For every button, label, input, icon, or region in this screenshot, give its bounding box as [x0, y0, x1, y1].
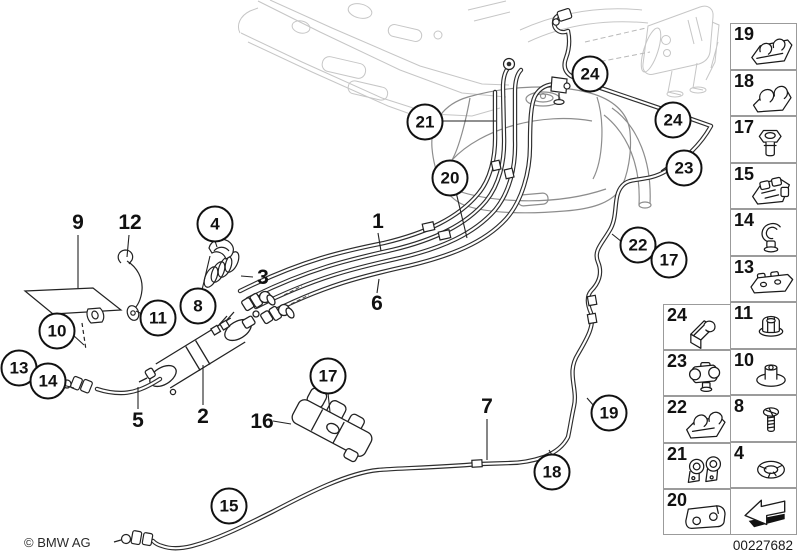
charcoal-canister-drawing	[637, 6, 719, 97]
nav-arrow-icon	[737, 491, 791, 531]
angle-holder-icon	[680, 311, 730, 349]
callout-circle-19[interactable]: 19	[591, 395, 628, 432]
washer-nut-icon	[746, 356, 796, 394]
legend-item-14[interactable]: 14	[730, 209, 797, 256]
legend-item-label: 8	[734, 396, 744, 417]
open-clamp-icon	[680, 404, 730, 442]
screw-icon	[746, 403, 796, 441]
legend-item-23[interactable]: 23	[663, 350, 731, 396]
callout-circle-24[interactable]: 24	[572, 56, 609, 93]
callout-label-16[interactable]: 16	[250, 410, 273, 434]
bmw-copyright: © BMW AG	[24, 535, 91, 550]
legend-item-18[interactable]: 18	[730, 70, 797, 117]
legend-item-8[interactable]: 8	[730, 395, 797, 442]
legend-nav-cell[interactable]	[730, 488, 797, 535]
legend-item-label: 4	[734, 443, 744, 464]
legend-item-20[interactable]: 20	[663, 489, 731, 535]
callout-circle-17[interactable]: 17	[310, 358, 347, 395]
diagram-number: 00227682	[733, 538, 793, 553]
callout-circle-8[interactable]: 8	[180, 288, 217, 325]
screw-plug-icon	[746, 124, 796, 162]
cap-nut-icon	[746, 310, 796, 348]
callout-label-12[interactable]: 12	[118, 211, 141, 235]
callout-label-3[interactable]: 3	[257, 266, 269, 290]
legend-item-13[interactable]: 13	[730, 256, 797, 303]
callout-label-6[interactable]: 6	[371, 292, 383, 316]
callout-label-1[interactable]: 1	[372, 210, 384, 234]
clamp-rail-icon	[746, 31, 796, 69]
legend-item-21[interactable]: 21	[663, 443, 731, 489]
clamp-block-drawing	[286, 384, 381, 465]
c-clip-icon	[746, 217, 796, 255]
callout-circle-20[interactable]: 20	[432, 160, 469, 197]
round-clamp-icon	[680, 357, 730, 395]
callout-circle-17[interactable]: 17	[651, 242, 688, 279]
legend-item-10[interactable]: 10	[730, 349, 797, 396]
rubber-block-icon	[680, 496, 730, 534]
callout-circle-14[interactable]: 14	[30, 363, 67, 400]
long-rail-icon	[746, 263, 796, 301]
callout-circle-10[interactable]: 10	[39, 313, 76, 350]
fuel-pipes-drawing	[153, 8, 711, 548]
callout-circle-15[interactable]: 15	[211, 488, 248, 525]
callout-label-7[interactable]: 7	[481, 395, 493, 419]
lock-ring-icon	[746, 449, 796, 487]
callout-label-2[interactable]: 2	[197, 405, 209, 429]
legend-item-24[interactable]: 24	[663, 304, 731, 350]
callout-circle-11[interactable]: 11	[140, 300, 177, 337]
clamp-double-icon	[746, 77, 796, 115]
double-clip-icon	[680, 450, 730, 488]
callout-circle-21[interactable]: 21	[407, 104, 444, 141]
legend-item-22[interactable]: 22	[663, 396, 731, 442]
parts-diagram-page: © BMW AG 00227682 2421242320422178111013…	[0, 0, 799, 559]
callout-label-9[interactable]: 9	[72, 211, 84, 235]
legend-item-11[interactable]: 11	[730, 302, 797, 349]
callout-circle-24[interactable]: 24	[655, 102, 692, 139]
legend-item-17[interactable]: 17	[730, 116, 797, 163]
callout-circle-18[interactable]: 18	[534, 454, 571, 491]
callout-circle-23[interactable]: 23	[666, 150, 703, 187]
legend-item-4[interactable]: 4	[730, 442, 797, 489]
legend-item-15[interactable]: 15	[730, 163, 797, 210]
callout-circle-4[interactable]: 4	[197, 206, 234, 243]
callout-label-5[interactable]: 5	[132, 409, 144, 433]
multi-holder-icon	[746, 170, 796, 208]
legend-item-19[interactable]: 19	[730, 23, 797, 70]
